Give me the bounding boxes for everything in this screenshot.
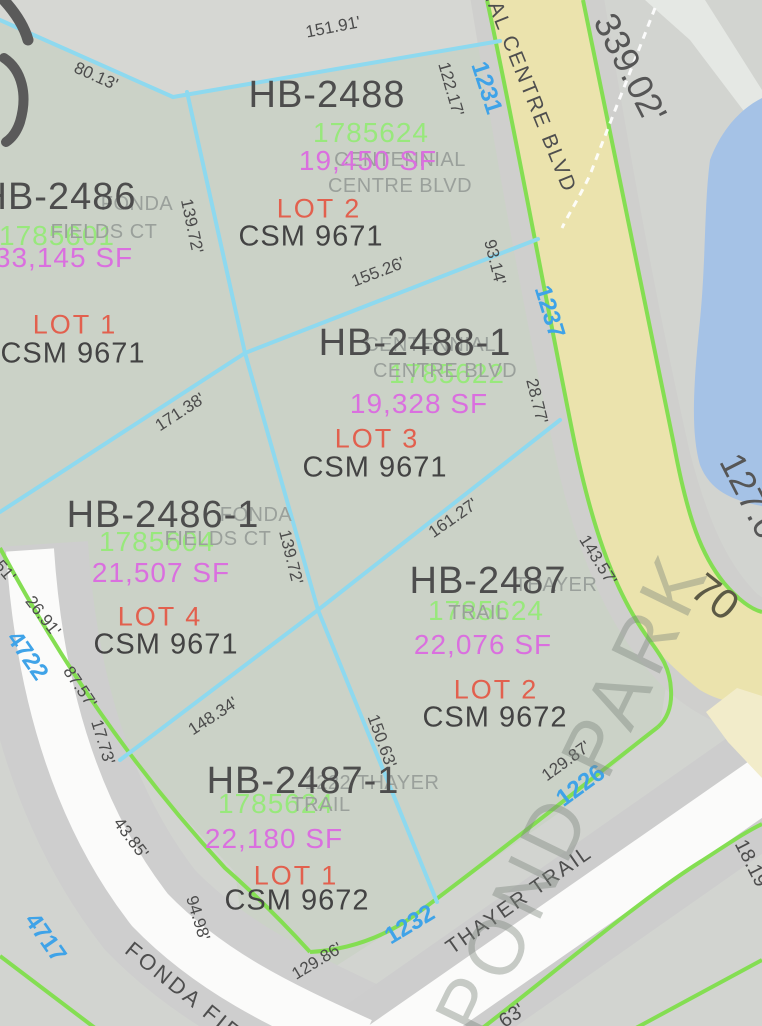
parcel-lot-label: LOT 2 [454, 677, 539, 704]
parcel-lot-label: LOT 1 [33, 312, 118, 339]
parcel-lot-label: LOT 4 [118, 604, 203, 631]
parcel-title-hb-2486-1: HB-2486-1 [67, 496, 260, 534]
parcel-lot-label: LOT 2 [277, 196, 362, 223]
parcel-csm-label: CSM 9671 [238, 223, 383, 252]
map-canvas[interactable]: 1785601 FONDA FIELDS CT 33,145 SF LOT 1 … [0, 0, 762, 1026]
parcel-csm-label: CSM 9671 [93, 631, 238, 660]
parcel-address-line2: CENTRE BLVD [373, 361, 517, 381]
parcel-csm-label: CSM 9671 [302, 454, 447, 483]
parcel-area-label: 33,145 SF [0, 244, 133, 272]
parcel-area-label: 22,076 SF [414, 631, 552, 659]
parcel-title-hb-2488: HB-2488 [249, 76, 406, 114]
parcel-title-hb-2488-1: HB-2488-1 [319, 324, 512, 362]
parcel-address-line2: FIELDS CT [51, 222, 158, 242]
parcel-csm-label: CSM 9671 [0, 340, 145, 369]
parcel-title-hb-2487-1: HB-2487-1 [207, 762, 400, 800]
parcel-pin: 1785624 [313, 119, 429, 147]
parcel-area-label: 19,328 SF [350, 390, 488, 418]
parcel-title-hb-2487: HB-2487 [410, 562, 567, 600]
parcel-csm-label: CSM 9672 [224, 887, 369, 916]
parcel-lot-label: LOT 3 [335, 426, 420, 453]
parcel-csm-label: CSM 9672 [422, 704, 567, 733]
parcel-address-line2: TRAIL [448, 603, 507, 623]
parcel-title-hb-2486: HB-2486 [0, 178, 136, 216]
parcel-area-label: 21,507 SF [92, 559, 230, 587]
parcel-area-label: 19,450 SF [299, 147, 437, 175]
parcel-area-label: 22,180 SF [205, 825, 343, 853]
